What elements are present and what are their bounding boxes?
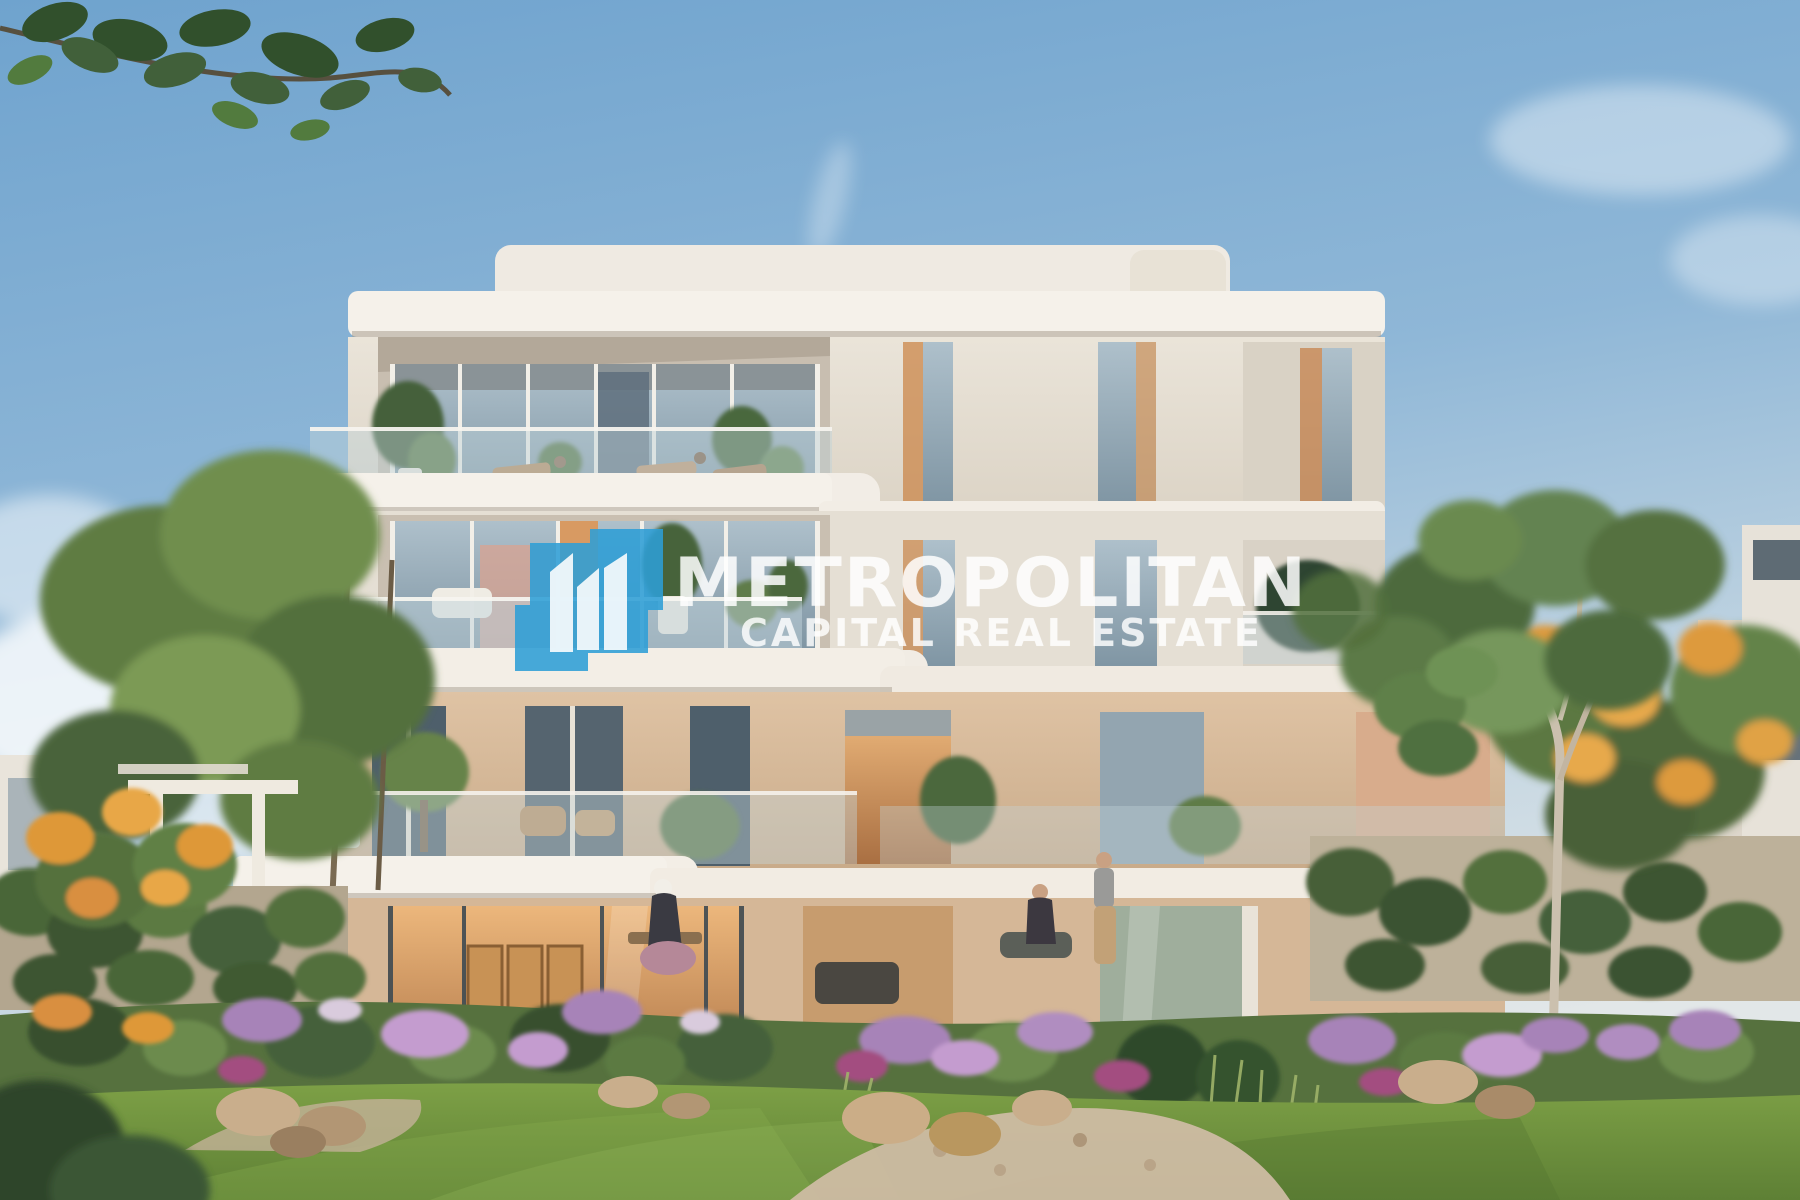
rendered-scene	[0, 0, 1800, 1200]
roof-slab	[348, 291, 1385, 337]
property-listing-photo: METROPOLITAN CAPITAL REAL ESTATE	[0, 0, 1800, 1200]
